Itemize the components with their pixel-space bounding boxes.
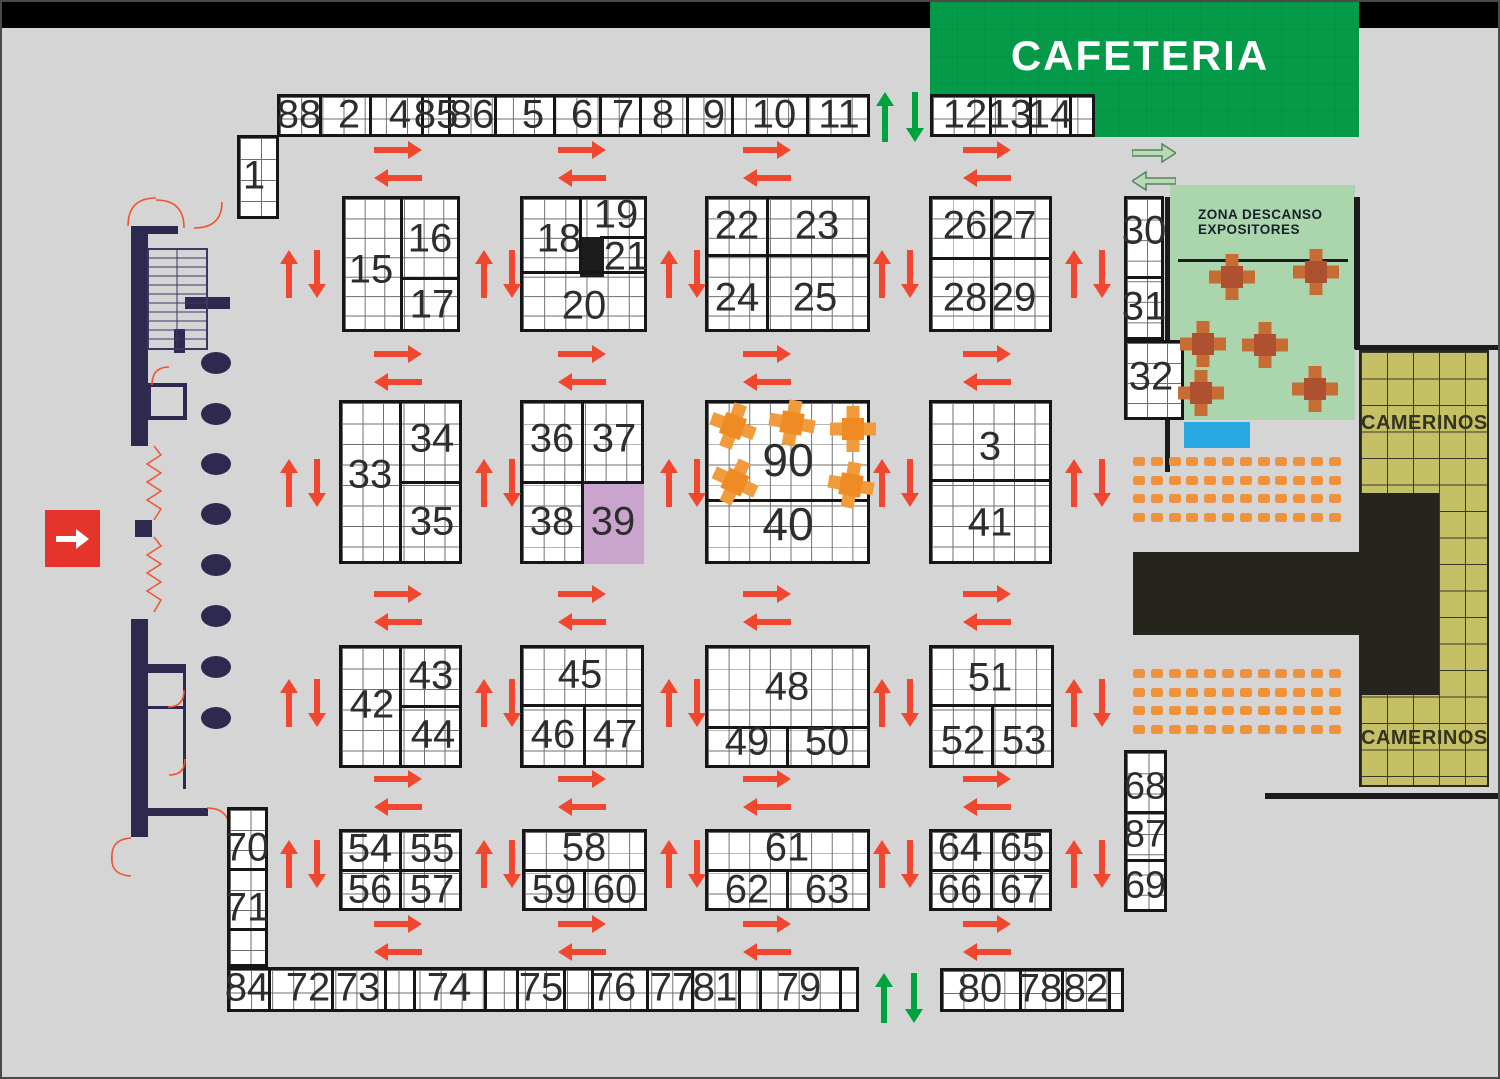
chair-icon: [1275, 476, 1287, 485]
booth-label-17: 17: [410, 284, 455, 324]
booth90-table-icon: [765, 396, 818, 449]
chair-icon: [1311, 669, 1323, 678]
booth-label-88: 88: [277, 94, 322, 134]
stage-block-vertical: [1359, 493, 1439, 695]
booth-label-67: 67: [1000, 869, 1045, 909]
chair-icon: [1222, 725, 1234, 734]
booth-label-69: 69: [1124, 866, 1166, 904]
chair-icon: [1151, 725, 1163, 734]
camerinos-bottom-wall: [1265, 793, 1500, 799]
red-arrow-left-icon: [743, 941, 791, 963]
booth-label-31: 31: [1122, 286, 1167, 326]
chair-icon: [1311, 706, 1323, 715]
staircase: [148, 249, 207, 349]
booth-label-19: 19: [594, 194, 639, 234]
chair-icon: [1329, 494, 1341, 503]
red-arrow-right-icon: [743, 343, 791, 365]
booth-label-38: 38: [530, 501, 575, 541]
red-arrow-left-icon: [374, 941, 422, 963]
booth-block-48-50-divider: [786, 727, 789, 768]
chair-icon: [1311, 457, 1323, 466]
chair-icon: [1275, 706, 1287, 715]
booth-label-41: 41: [968, 502, 1013, 542]
chair-icon: [1329, 476, 1341, 485]
booth-label-32: 32: [1129, 356, 1174, 396]
camerinos-label-top: CAMERINOS: [1361, 412, 1487, 435]
chair-icon: [1133, 513, 1145, 522]
red-arrow-left-icon: [558, 796, 606, 818]
booth-label-76: 76: [592, 967, 637, 1007]
red-arrow-down-icon: [1091, 459, 1113, 507]
entrance-arrow-icon: [56, 527, 90, 551]
strip-top-divider: [806, 94, 809, 137]
cafeteria-label: CAFETERIA: [930, 32, 1350, 80]
chair-icon: [1186, 457, 1198, 466]
chair-icon: [1293, 494, 1305, 503]
strip-bottom-divider: [484, 967, 487, 1012]
chair-icon: [1329, 669, 1341, 678]
booth-block-15-17-divider: [401, 277, 460, 280]
chair-icon: [1311, 476, 1323, 485]
chair-icon: [1240, 706, 1252, 715]
red-arrow-right-icon: [963, 583, 1011, 605]
chair-icon: [1240, 476, 1252, 485]
red-arrow-up-icon: [1063, 459, 1085, 507]
chair-icon: [1186, 688, 1198, 697]
red-arrow-right-icon: [558, 583, 606, 605]
red-arrow-up-icon: [658, 679, 680, 727]
booth-label-2: 2: [338, 94, 360, 134]
chair-icon: [1151, 688, 1163, 697]
booth-block-36-39-divider: [520, 481, 644, 484]
chair-icon: [1169, 669, 1181, 678]
red-arrow-left-icon: [963, 796, 1011, 818]
chair-icon: [1258, 669, 1270, 678]
chair-icon: [1133, 494, 1145, 503]
chair-icon: [1293, 476, 1305, 485]
chair-icon: [1222, 457, 1234, 466]
chair-icon: [1169, 725, 1181, 734]
strip-bottom-divider: [331, 967, 334, 1012]
booth-label-28: 28: [943, 277, 988, 317]
chair-icon: [1133, 669, 1145, 678]
red-arrow-up-icon: [658, 459, 680, 507]
green-arrow-up-icon: [873, 973, 895, 1023]
booth-label-22: 22: [715, 205, 760, 245]
chair-icon: [1169, 706, 1181, 715]
red-arrow-right-icon: [374, 343, 422, 365]
booth-label-45: 45: [558, 654, 603, 694]
booth-label-60: 60: [593, 869, 638, 909]
blue-counter: [1184, 422, 1250, 448]
red-arrow-down-icon: [686, 459, 708, 507]
red-arrow-down-icon: [686, 250, 708, 298]
rest-table-icon: [1209, 254, 1255, 300]
booth-label-25: 25: [793, 277, 838, 317]
rest-table-icon: [1242, 322, 1288, 368]
booth-label-39: 39: [591, 501, 636, 541]
booth-block-3-41-divider: [929, 479, 1052, 482]
rest-table-icon: [1178, 370, 1224, 416]
chair-icon: [1222, 476, 1234, 485]
chair-icon: [1151, 476, 1163, 485]
red-arrow-up-icon: [871, 250, 893, 298]
chair-icon: [1311, 688, 1323, 697]
booth-label-53: 53: [1002, 720, 1047, 760]
red-arrow-left-icon: [558, 941, 606, 963]
booth-block-58-60-divider: [583, 870, 586, 911]
red-arrow-down-icon: [306, 250, 328, 298]
red-arrow-left-icon: [743, 371, 791, 393]
booth-label-14: 14: [1028, 94, 1073, 134]
pale-green-arrow-right-icon: [1132, 142, 1176, 164]
chair-icon: [1293, 513, 1305, 522]
booth-label-43: 43: [409, 655, 454, 695]
red-arrow-right-icon: [374, 913, 422, 935]
rest-table-icon: [1293, 249, 1339, 295]
chair-icon: [1204, 494, 1216, 503]
walls: [131, 226, 230, 837]
chair-icon: [1311, 725, 1323, 734]
red-arrow-right-icon: [963, 343, 1011, 365]
strip-top-divider: [639, 94, 642, 137]
booth-label-66: 66: [938, 869, 983, 909]
booth-label-57: 57: [410, 869, 455, 909]
red-arrow-left-icon: [743, 611, 791, 633]
strip-top-divider: [686, 94, 689, 137]
small-room: [149, 385, 185, 418]
red-arrow-right-icon: [743, 768, 791, 790]
booth-label-26: 26: [943, 205, 988, 245]
red-arrow-right-icon: [743, 583, 791, 605]
booth-label-82: 82: [1064, 968, 1109, 1008]
booth-label-58: 58: [562, 827, 607, 867]
red-arrow-down-icon: [501, 840, 523, 888]
chair-icon: [1151, 706, 1163, 715]
chair-icon: [1222, 706, 1234, 715]
red-arrow-right-icon: [558, 913, 606, 935]
red-arrow-down-icon: [501, 459, 523, 507]
red-arrow-right-icon: [558, 343, 606, 365]
zona-right-wall: [1354, 197, 1360, 349]
booth-label-78: 78: [1018, 968, 1063, 1008]
zona-descanso-label-line2: EXPOSITORES: [1198, 222, 1358, 237]
booth-label-47: 47: [593, 714, 638, 754]
chair-icon: [1133, 476, 1145, 485]
red-arrow-down-icon: [501, 250, 523, 298]
red-arrow-up-icon: [278, 250, 300, 298]
booth-label-5: 5: [522, 94, 544, 134]
rest-table-icon: [1180, 321, 1226, 367]
booth-label-81: 81: [693, 967, 738, 1007]
booth-label-27: 27: [992, 205, 1037, 245]
chair-icon: [1293, 457, 1305, 466]
booth-label-13: 13: [988, 94, 1033, 134]
red-arrow-down-icon: [686, 679, 708, 727]
booth-label-36: 36: [530, 418, 575, 458]
booth-label-87: 87: [1124, 815, 1166, 853]
chair-icon: [1186, 494, 1198, 503]
red-arrow-up-icon: [1063, 250, 1085, 298]
chair-icon: [1258, 688, 1270, 697]
green-arrow-down-icon: [904, 92, 926, 142]
chair-icon: [1293, 669, 1305, 678]
booth-label-77: 77: [650, 967, 695, 1007]
booth90-table-icon: [830, 406, 876, 452]
red-arrow-right-icon: [963, 768, 1011, 790]
red-arrow-right-icon: [743, 913, 791, 935]
chair-icon: [1169, 476, 1181, 485]
booth-label-59: 59: [532, 869, 577, 909]
red-arrow-down-icon: [306, 679, 328, 727]
pale-green-arrow-left-icon: [1132, 170, 1176, 192]
chair-icon: [1186, 513, 1198, 522]
booth-label-72: 72: [286, 967, 331, 1007]
booth-label-70: 70: [225, 827, 270, 867]
booth-label-75: 75: [519, 967, 564, 1007]
red-arrow-left-icon: [558, 167, 606, 189]
booth-label-8: 8: [652, 94, 674, 134]
chair-icon: [1222, 688, 1234, 697]
booth-label-18: 18: [537, 218, 582, 258]
green-arrow-up-icon: [874, 92, 896, 142]
red-arrow-down-icon: [306, 840, 328, 888]
chair-icon: [1186, 725, 1198, 734]
chair-icon: [1258, 494, 1270, 503]
booth-col-30-31-divider: [1124, 276, 1164, 279]
accordion-partition: [147, 446, 161, 612]
red-arrow-up-icon: [278, 679, 300, 727]
booth-label-62: 62: [725, 869, 770, 909]
red-arrow-up-icon: [871, 679, 893, 727]
booth-label-50: 50: [805, 721, 850, 761]
booth-block-45-47-divider: [520, 704, 644, 707]
red-arrow-down-icon: [686, 840, 708, 888]
chair-icon: [1258, 725, 1270, 734]
chair-icon: [1151, 669, 1163, 678]
booth-block-26-29-divider: [929, 257, 1052, 260]
booth-label-37: 37: [592, 418, 637, 458]
red-arrow-down-icon: [899, 840, 921, 888]
chair-icon: [1275, 513, 1287, 522]
red-arrow-up-icon: [658, 840, 680, 888]
chair-icon: [1186, 476, 1198, 485]
chair-icon: [1311, 494, 1323, 503]
red-arrow-up-icon: [473, 250, 495, 298]
chair-icon: [1133, 706, 1145, 715]
strip-bottom-divider: [413, 967, 416, 1012]
chair-icon: [1133, 457, 1145, 466]
chair-icon: [1133, 688, 1145, 697]
booth-label-21: 21: [604, 236, 649, 276]
red-arrow-left-icon: [558, 611, 606, 633]
chair-icon: [1204, 513, 1216, 522]
booth-block-51-53-divider: [929, 704, 1054, 707]
booth-label-49: 49: [725, 721, 770, 761]
chair-icon: [1169, 494, 1181, 503]
booth-label-15: 15: [349, 249, 394, 289]
chair-icon: [1258, 513, 1270, 522]
chair-icon: [1329, 706, 1341, 715]
red-arrow-down-icon: [899, 679, 921, 727]
red-arrow-down-icon: [1091, 679, 1113, 727]
chair-icon: [1258, 457, 1270, 466]
chair-icon: [1329, 688, 1341, 697]
booth-label-46: 46: [531, 714, 576, 754]
booth-block-22-25-divider: [705, 254, 870, 257]
booth-label-86: 86: [450, 94, 495, 134]
booth-block-15-17-divider: [400, 196, 403, 332]
red-arrow-left-icon: [374, 167, 422, 189]
strip-bottom-divider: [839, 967, 842, 1012]
strip-top-divider: [731, 94, 734, 137]
red-arrow-down-icon: [306, 459, 328, 507]
chair-icon: [1293, 725, 1305, 734]
booth-label-23: 23: [795, 205, 840, 245]
red-arrow-right-icon: [558, 768, 606, 790]
entrance-marker: [45, 510, 100, 567]
red-arrow-up-icon: [473, 459, 495, 507]
chair-icon: [1275, 688, 1287, 697]
booth-label-29: 29: [992, 277, 1037, 317]
strip-bottom-divider: [384, 967, 387, 1012]
booth-label-52: 52: [941, 720, 986, 760]
booth-block-42-44-divider: [400, 705, 462, 708]
zona-descanso-label-line1: ZONA DESCANSO: [1198, 207, 1358, 222]
red-arrow-right-icon: [963, 139, 1011, 161]
chair-icon: [1240, 494, 1252, 503]
chair-icon: [1329, 457, 1341, 466]
red-arrow-up-icon: [871, 840, 893, 888]
chair-icon: [1204, 669, 1216, 678]
booth-label-4: 4: [389, 94, 411, 134]
booth-label-7: 7: [612, 94, 634, 134]
booth-label-6: 6: [571, 94, 593, 134]
red-arrow-down-icon: [501, 679, 523, 727]
stage-block-horizontal: [1133, 552, 1359, 635]
pillars: [201, 352, 231, 729]
booth-label-55: 55: [410, 828, 455, 868]
red-arrow-right-icon: [743, 139, 791, 161]
booth-label-54: 54: [348, 828, 393, 868]
red-arrow-up-icon: [278, 459, 300, 507]
chair-icon: [1258, 706, 1270, 715]
booth-label-68: 68: [1124, 767, 1166, 805]
booth-block-22-25-divider: [766, 196, 769, 332]
chair-icon: [1186, 706, 1198, 715]
red-arrow-up-icon: [1063, 840, 1085, 888]
red-arrow-down-icon: [1091, 840, 1113, 888]
chair-icon: [1329, 513, 1341, 522]
booth-block-61-63-divider: [786, 870, 789, 911]
chair-icon: [1222, 669, 1234, 678]
booth-label-35: 35: [410, 501, 455, 541]
chair-icon: [1293, 688, 1305, 697]
red-arrow-up-icon: [658, 250, 680, 298]
booth-label-64: 64: [938, 827, 983, 867]
red-arrow-left-icon: [374, 371, 422, 393]
chair-icon: [1293, 706, 1305, 715]
chair-icon: [1275, 725, 1287, 734]
strip-bottom-divider: [738, 967, 741, 1012]
chair-icon: [1222, 494, 1234, 503]
red-arrow-up-icon: [1063, 679, 1085, 727]
red-arrow-left-icon: [963, 371, 1011, 393]
chair-icon: [1240, 457, 1252, 466]
floor-plan: CAFETERIA ZONA DESCANSO EXPOSITORES CAME…: [0, 0, 1500, 1079]
booth-label-63: 63: [805, 869, 850, 909]
chair-icon: [1151, 513, 1163, 522]
chair-icon: [1222, 513, 1234, 522]
booth-label-3: 3: [979, 426, 1001, 466]
booth-block-51-53-divider: [991, 705, 994, 768]
camerinos-label-bottom: CAMERINOS: [1361, 727, 1487, 750]
chair-icon: [1240, 688, 1252, 697]
chair-icon: [1151, 457, 1163, 466]
red-arrow-left-icon: [558, 371, 606, 393]
chair-icon: [1240, 725, 1252, 734]
booth-label-10: 10: [752, 94, 797, 134]
chair-icon: [1169, 513, 1181, 522]
booth-block-45-47-divider: [583, 705, 586, 768]
booth-label-74: 74: [427, 967, 472, 1007]
booth90-table-icon: [824, 458, 877, 511]
red-arrow-right-icon: [374, 768, 422, 790]
chair-icon: [1204, 706, 1216, 715]
chair-icon: [1204, 725, 1216, 734]
strip-top-divider: [369, 94, 372, 137]
red-arrow-right-icon: [374, 583, 422, 605]
chair-icon: [1169, 457, 1181, 466]
booth-label-48: 48: [765, 666, 810, 706]
booth-label-30: 30: [1122, 210, 1167, 250]
red-arrow-left-icon: [743, 796, 791, 818]
red-arrow-up-icon: [278, 840, 300, 888]
booth-label-40: 40: [762, 501, 813, 547]
booth-label-16: 16: [408, 218, 453, 258]
strip-top-divider: [599, 94, 602, 137]
booth-label-9: 9: [703, 94, 725, 134]
booth-label-12: 12: [943, 94, 988, 134]
red-arrow-down-icon: [899, 250, 921, 298]
booth-label-51: 51: [968, 657, 1013, 697]
booth-label-11: 11: [818, 94, 860, 134]
red-arrow-up-icon: [473, 840, 495, 888]
booth-label-56: 56: [348, 869, 393, 909]
chair-icon: [1204, 476, 1216, 485]
red-arrow-left-icon: [743, 167, 791, 189]
red-arrow-left-icon: [374, 796, 422, 818]
chair-icon: [1240, 513, 1252, 522]
booth-col-68-87-69-divider: [1124, 859, 1167, 862]
red-arrow-right-icon: [558, 139, 606, 161]
green-arrow-down-icon: [903, 973, 925, 1023]
booth-label-44: 44: [411, 714, 456, 754]
red-arrow-left-icon: [963, 167, 1011, 189]
red-arrow-right-icon: [963, 913, 1011, 935]
red-arrow-left-icon: [374, 611, 422, 633]
chair-icon: [1258, 476, 1270, 485]
booth-label-42: 42: [350, 684, 395, 724]
chair-icon: [1186, 669, 1198, 678]
chair-icon: [1169, 688, 1181, 697]
booth-block-33-35-divider: [400, 481, 462, 484]
booth-label-80: 80: [958, 968, 1003, 1008]
chair-icon: [1133, 725, 1145, 734]
booth-label-71: 71: [225, 887, 270, 927]
strip-top-divider: [553, 94, 556, 137]
chair-icon: [1329, 725, 1341, 734]
